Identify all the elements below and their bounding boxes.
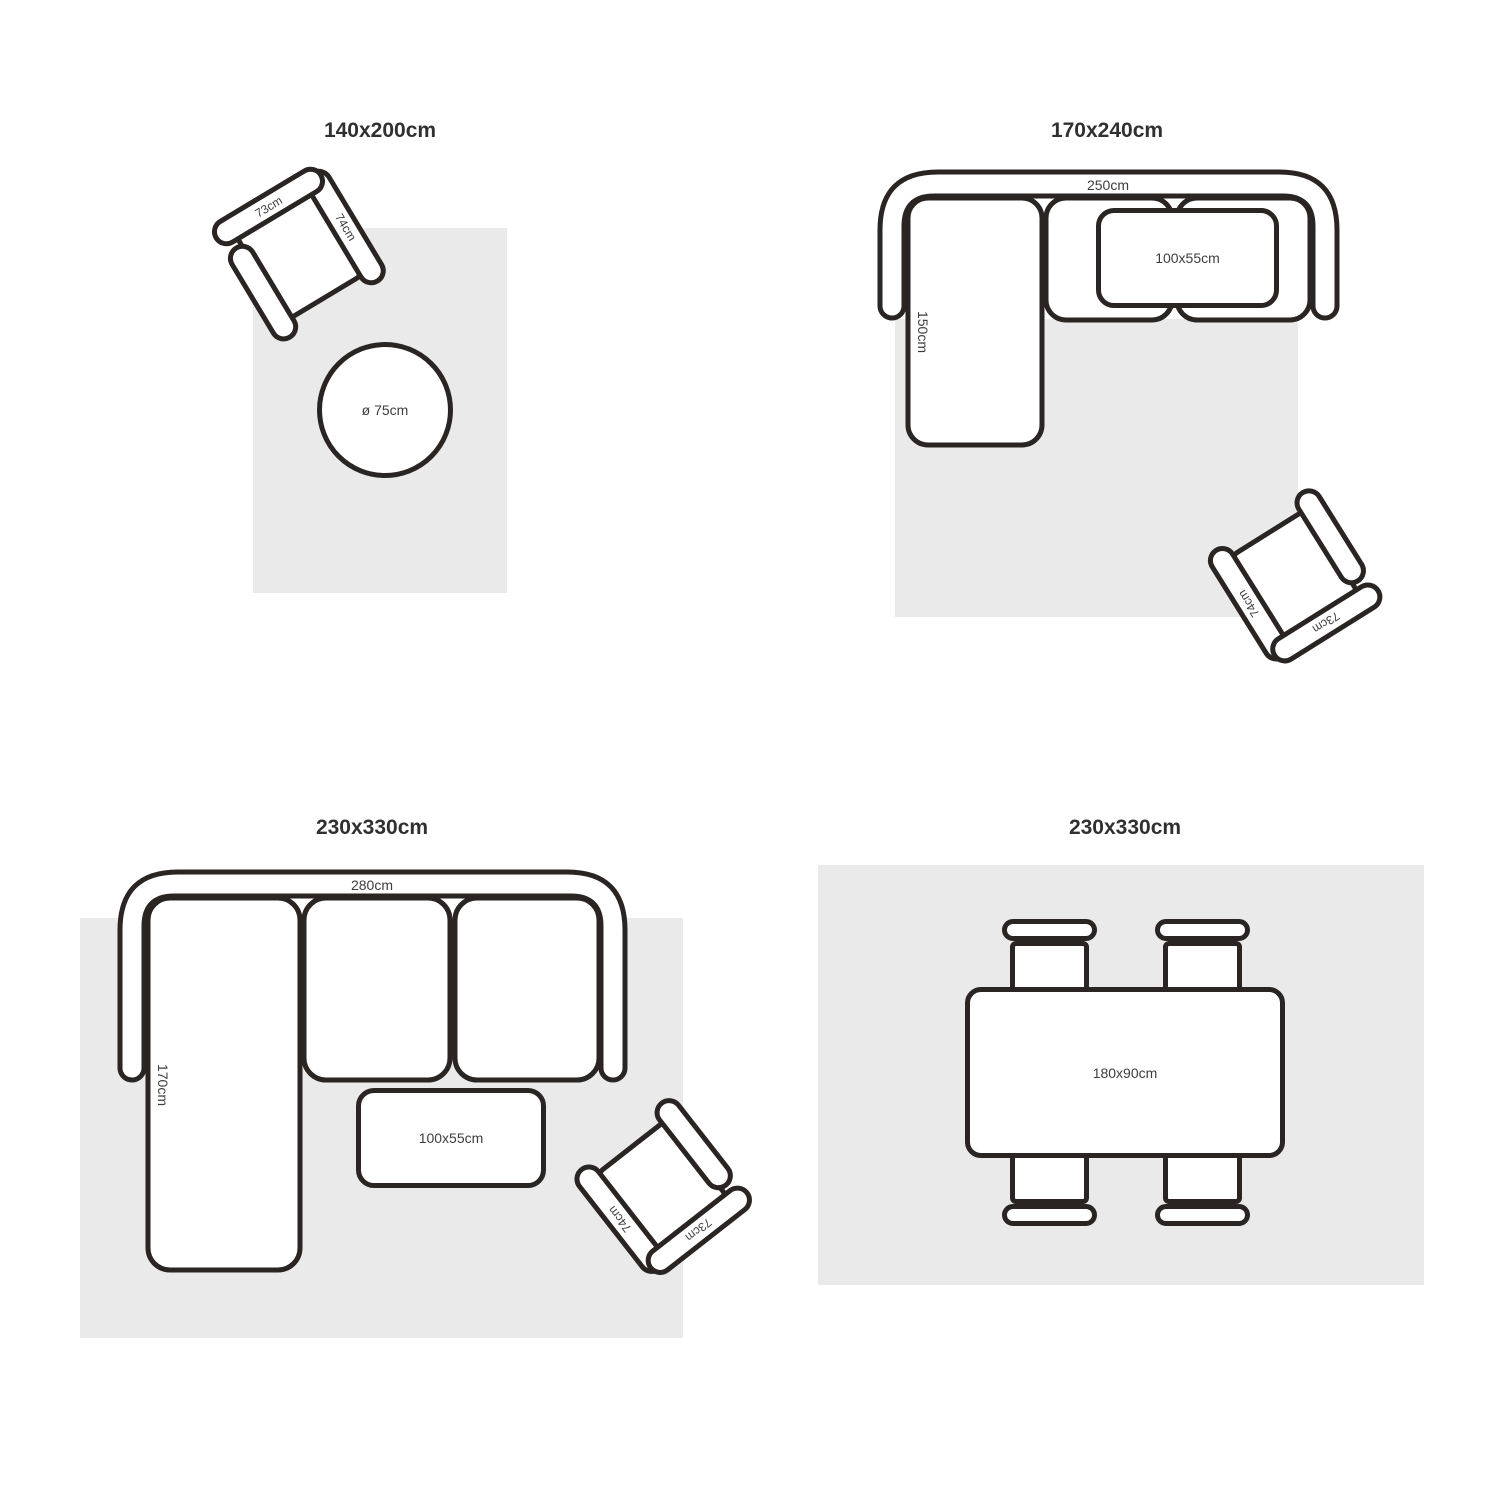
- coffee-table-label: 100x55cm: [1155, 250, 1220, 266]
- armchair-back-label: 73cm: [1310, 609, 1342, 636]
- rug-size-title: 170x240cm: [1051, 119, 1163, 143]
- panel-rug-170x240: 170x240cm 250cm 150cm 100x55cm 74cm 73cm: [750, 0, 1500, 750]
- armchair-arm-label: 74cm: [1236, 588, 1263, 620]
- rug-size-title: 140x200cm: [324, 119, 436, 143]
- coffee-table: 100x55cm: [1096, 208, 1279, 308]
- dining-table: 180x90cm: [965, 987, 1285, 1158]
- armchair-arm-label: 74cm: [331, 211, 358, 243]
- dining-chair-back: [1155, 1204, 1250, 1226]
- sofa-chaise-label: 170cm: [155, 1064, 171, 1106]
- panel-rug-230x330-dining: 230x330cm 180x90cm: [750, 750, 1500, 1500]
- dining-chair-seat: [1010, 1153, 1089, 1204]
- armchair-back-label: 73cm: [683, 1216, 715, 1245]
- sofa-width-label: 250cm: [1087, 177, 1129, 193]
- coffee-table: 100x55cm: [356, 1088, 546, 1188]
- dining-chair-back: [1002, 919, 1097, 941]
- dining-chair-back: [1002, 1204, 1097, 1226]
- rug-size-title: 230x330cm: [316, 816, 428, 840]
- armchair-arm-label: 74cm: [606, 1203, 635, 1235]
- rug-size-title: 230x330cm: [1069, 816, 1181, 840]
- dining-chair-seat: [1163, 1153, 1242, 1204]
- dining-chair-back: [1155, 919, 1250, 941]
- sofa-chaise-label: 150cm: [915, 311, 931, 353]
- dining-chair-seat: [1010, 941, 1089, 992]
- sofa-right-cushion: [455, 898, 599, 1080]
- panel-rug-230x330-sofa: 230x330cm 280cm 170cm 100x55cm 74cm 73cm: [0, 750, 750, 1500]
- sofa-width-label: 280cm: [351, 877, 393, 893]
- round-side-table: ø 75cm: [317, 342, 453, 478]
- corner-sofa: 280cm 170cm: [120, 872, 625, 1282]
- dining-table-label: 180x90cm: [1093, 1065, 1158, 1081]
- panel-rug-140x200: 140x200cm 74cm 73cm ø 75cm: [0, 0, 750, 750]
- dining-chair-seat: [1163, 941, 1242, 992]
- sofa-middle-cushion: [304, 898, 450, 1080]
- round-table-label: ø 75cm: [362, 402, 409, 418]
- coffee-table-label: 100x55cm: [419, 1130, 484, 1146]
- rug-size-guide: 140x200cm 74cm 73cm ø 75cm 170x240cm 250…: [0, 0, 1500, 1500]
- armchair-back-label: 73cm: [252, 193, 284, 220]
